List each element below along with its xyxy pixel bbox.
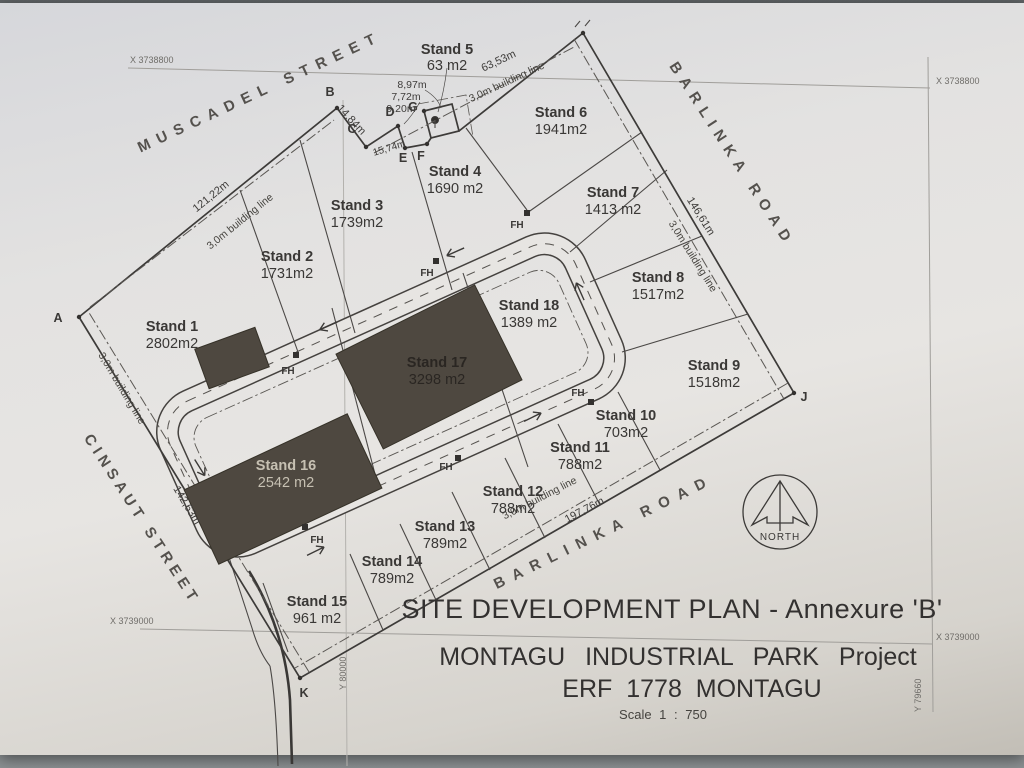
svg-text:Stand 15: Stand 15 bbox=[287, 594, 347, 610]
stand-2-label: Stand 21731m2 bbox=[261, 249, 313, 282]
svg-text:789m2: 789m2 bbox=[423, 536, 467, 552]
svg-text:2542 m2: 2542 m2 bbox=[258, 475, 314, 491]
gridline-x-bottom bbox=[140, 629, 932, 644]
svg-text:Stand 4: Stand 4 bbox=[429, 164, 481, 180]
fh-label: FH bbox=[571, 388, 584, 399]
erf-title: ERF 1778 MONTAGU bbox=[562, 675, 821, 703]
svg-text:Stand 6: Stand 6 bbox=[535, 105, 587, 121]
stand-8-label: Stand 81517m2 bbox=[632, 270, 684, 303]
building-line-label: 3,0m building line bbox=[467, 60, 546, 105]
vertex-label-e: E bbox=[399, 151, 407, 165]
stand-9-label: Stand 91518m2 bbox=[688, 358, 740, 391]
stand-5-label: Stand 563 m2 bbox=[421, 42, 473, 74]
stand-1-label: Stand 12802m2 bbox=[146, 319, 198, 352]
building-line bbox=[295, 383, 788, 668]
dimension: 63,53m bbox=[480, 48, 518, 74]
svg-text:788m2: 788m2 bbox=[558, 457, 602, 473]
stand-6-label: Stand 61941m2 bbox=[535, 105, 587, 138]
stand-14-label: Stand 14789m2 bbox=[362, 554, 422, 587]
svg-text:Stand 2: Stand 2 bbox=[261, 249, 313, 265]
dimension: 197,76m bbox=[563, 495, 606, 526]
grid-label: Y 79660 bbox=[913, 679, 923, 712]
svg-text:Stand 9: Stand 9 bbox=[688, 358, 740, 374]
street-kerb-thin bbox=[270, 666, 278, 766]
svg-text:Stand 18: Stand 18 bbox=[499, 298, 559, 314]
title-block: SITE DEVELOPMENT PLAN - Annexure 'B' MON… bbox=[401, 594, 942, 722]
fh-marker bbox=[588, 399, 594, 405]
south-entrance-edge bbox=[225, 545, 270, 666]
svg-text:Stand 8: Stand 8 bbox=[632, 270, 684, 286]
svg-text:1941m2: 1941m2 bbox=[535, 122, 587, 138]
stand-13-label: Stand 13789m2 bbox=[415, 519, 475, 552]
divider-s8-s9 bbox=[622, 314, 748, 352]
photo-background: X 3738800 X 3738800 X 3739000 X 3739000 … bbox=[0, 0, 1024, 768]
building-line-label: 3,0m building line bbox=[95, 350, 147, 426]
svg-text:2802m2: 2802m2 bbox=[146, 336, 198, 352]
north-label: NORTH bbox=[760, 532, 800, 543]
dimension: 9,20m bbox=[386, 103, 415, 115]
stand-4-label: Stand 41690 m2 bbox=[427, 164, 483, 197]
stand-17-label: Stand 173298 m2 bbox=[407, 355, 467, 388]
svg-text:788m2: 788m2 bbox=[491, 501, 535, 517]
scale-label: Scale 1 : 750 bbox=[619, 707, 707, 722]
grid-label: X 3738800 bbox=[936, 76, 980, 86]
svg-text:1731m2: 1731m2 bbox=[261, 266, 313, 282]
grid-label: X 3739000 bbox=[936, 632, 980, 642]
fh-label: FH bbox=[310, 535, 323, 546]
vertex-label-k: K bbox=[299, 686, 308, 700]
dimension: 8,97m bbox=[397, 79, 426, 91]
svg-text:Stand 12: Stand 12 bbox=[483, 484, 543, 500]
svg-text:Stand 7: Stand 7 bbox=[587, 185, 639, 201]
svg-text:1389 m2: 1389 m2 bbox=[501, 315, 557, 331]
site-plan-drawing: X 3738800 X 3738800 X 3739000 X 3739000 … bbox=[0, 0, 1024, 768]
fh-label: FH bbox=[420, 268, 433, 279]
svg-text:63 m2: 63 m2 bbox=[427, 58, 467, 74]
fh-label: FH bbox=[281, 366, 294, 377]
arrow-icon bbox=[445, 244, 466, 260]
svg-text:Stand 17: Stand 17 bbox=[407, 355, 467, 371]
vertex-label-j: J bbox=[801, 390, 808, 404]
svg-text:789m2: 789m2 bbox=[370, 571, 414, 587]
svg-text:Stand 16: Stand 16 bbox=[256, 458, 316, 474]
svg-text:1517m2: 1517m2 bbox=[632, 287, 684, 303]
svg-text:961 m2: 961 m2 bbox=[293, 611, 341, 627]
svg-text:Stand 11: Stand 11 bbox=[550, 440, 610, 456]
divider-s2-s3 bbox=[300, 140, 355, 333]
stand-15-label: Stand 15961 m2 bbox=[287, 594, 347, 627]
stand-3-label: Stand 31739m2 bbox=[331, 198, 383, 231]
svg-text:Stand 1: Stand 1 bbox=[146, 319, 198, 335]
stand-18-label: Stand 181389 m2 bbox=[499, 298, 559, 331]
svg-text:1690 m2: 1690 m2 bbox=[427, 181, 483, 197]
building-line bbox=[418, 95, 473, 137]
fh-label: FH bbox=[439, 462, 452, 473]
street-name-barlinka-top: BARLINKA ROAD bbox=[666, 59, 799, 250]
fh-marker bbox=[433, 258, 439, 264]
dimension: 7,72m bbox=[391, 91, 420, 103]
dim-leader bbox=[425, 90, 441, 108]
stand-11-label: Stand 11788m2 bbox=[550, 440, 610, 473]
svg-text:703m2: 703m2 bbox=[604, 425, 648, 441]
svg-text:Stand 10: Stand 10 bbox=[596, 408, 656, 424]
plan-title: SITE DEVELOPMENT PLAN - Annexure 'B' bbox=[401, 594, 942, 624]
svg-text:Stand 3: Stand 3 bbox=[331, 198, 383, 214]
street-name-muscadel: MUSCADEL STREET bbox=[135, 28, 385, 157]
grid-label: Y 80000 bbox=[338, 657, 348, 690]
vertex-label-b: B bbox=[325, 85, 334, 99]
fh-marker bbox=[293, 352, 299, 358]
fh-marker bbox=[455, 455, 461, 461]
svg-text:Stand 13: Stand 13 bbox=[415, 519, 475, 535]
north-arrow-icon: NORTH bbox=[743, 475, 817, 549]
project-title: MONTAGU INDUSTRIAL PARK Project bbox=[439, 643, 917, 671]
fh-marker bbox=[524, 210, 530, 216]
stand-7-label: Stand 71413 m2 bbox=[585, 185, 641, 218]
grid-label: X 3738800 bbox=[130, 55, 174, 65]
svg-text:1413 m2: 1413 m2 bbox=[585, 202, 641, 218]
grid-label: X 3739000 bbox=[110, 616, 154, 626]
survey-tick bbox=[575, 20, 590, 27]
svg-text:Stand 14: Stand 14 bbox=[362, 554, 422, 570]
fh-label: FH bbox=[510, 220, 523, 231]
fh-marker bbox=[302, 524, 308, 530]
vertex-label-f: F bbox=[417, 149, 425, 163]
stand-12-label: Stand 12788m2 bbox=[483, 484, 543, 517]
stand-16-label: Stand 162542 m2 bbox=[256, 458, 316, 491]
svg-text:Stand 5: Stand 5 bbox=[421, 42, 473, 58]
stand-5-parcel bbox=[424, 104, 459, 138]
svg-text:1518m2: 1518m2 bbox=[688, 375, 740, 391]
dimension: 146,61m bbox=[684, 195, 717, 238]
stand-10-label: Stand 10703m2 bbox=[596, 408, 656, 441]
svg-text:1739m2: 1739m2 bbox=[331, 215, 383, 231]
vertex-label-a: A bbox=[53, 311, 62, 325]
svg-text:3298 m2: 3298 m2 bbox=[409, 372, 465, 388]
